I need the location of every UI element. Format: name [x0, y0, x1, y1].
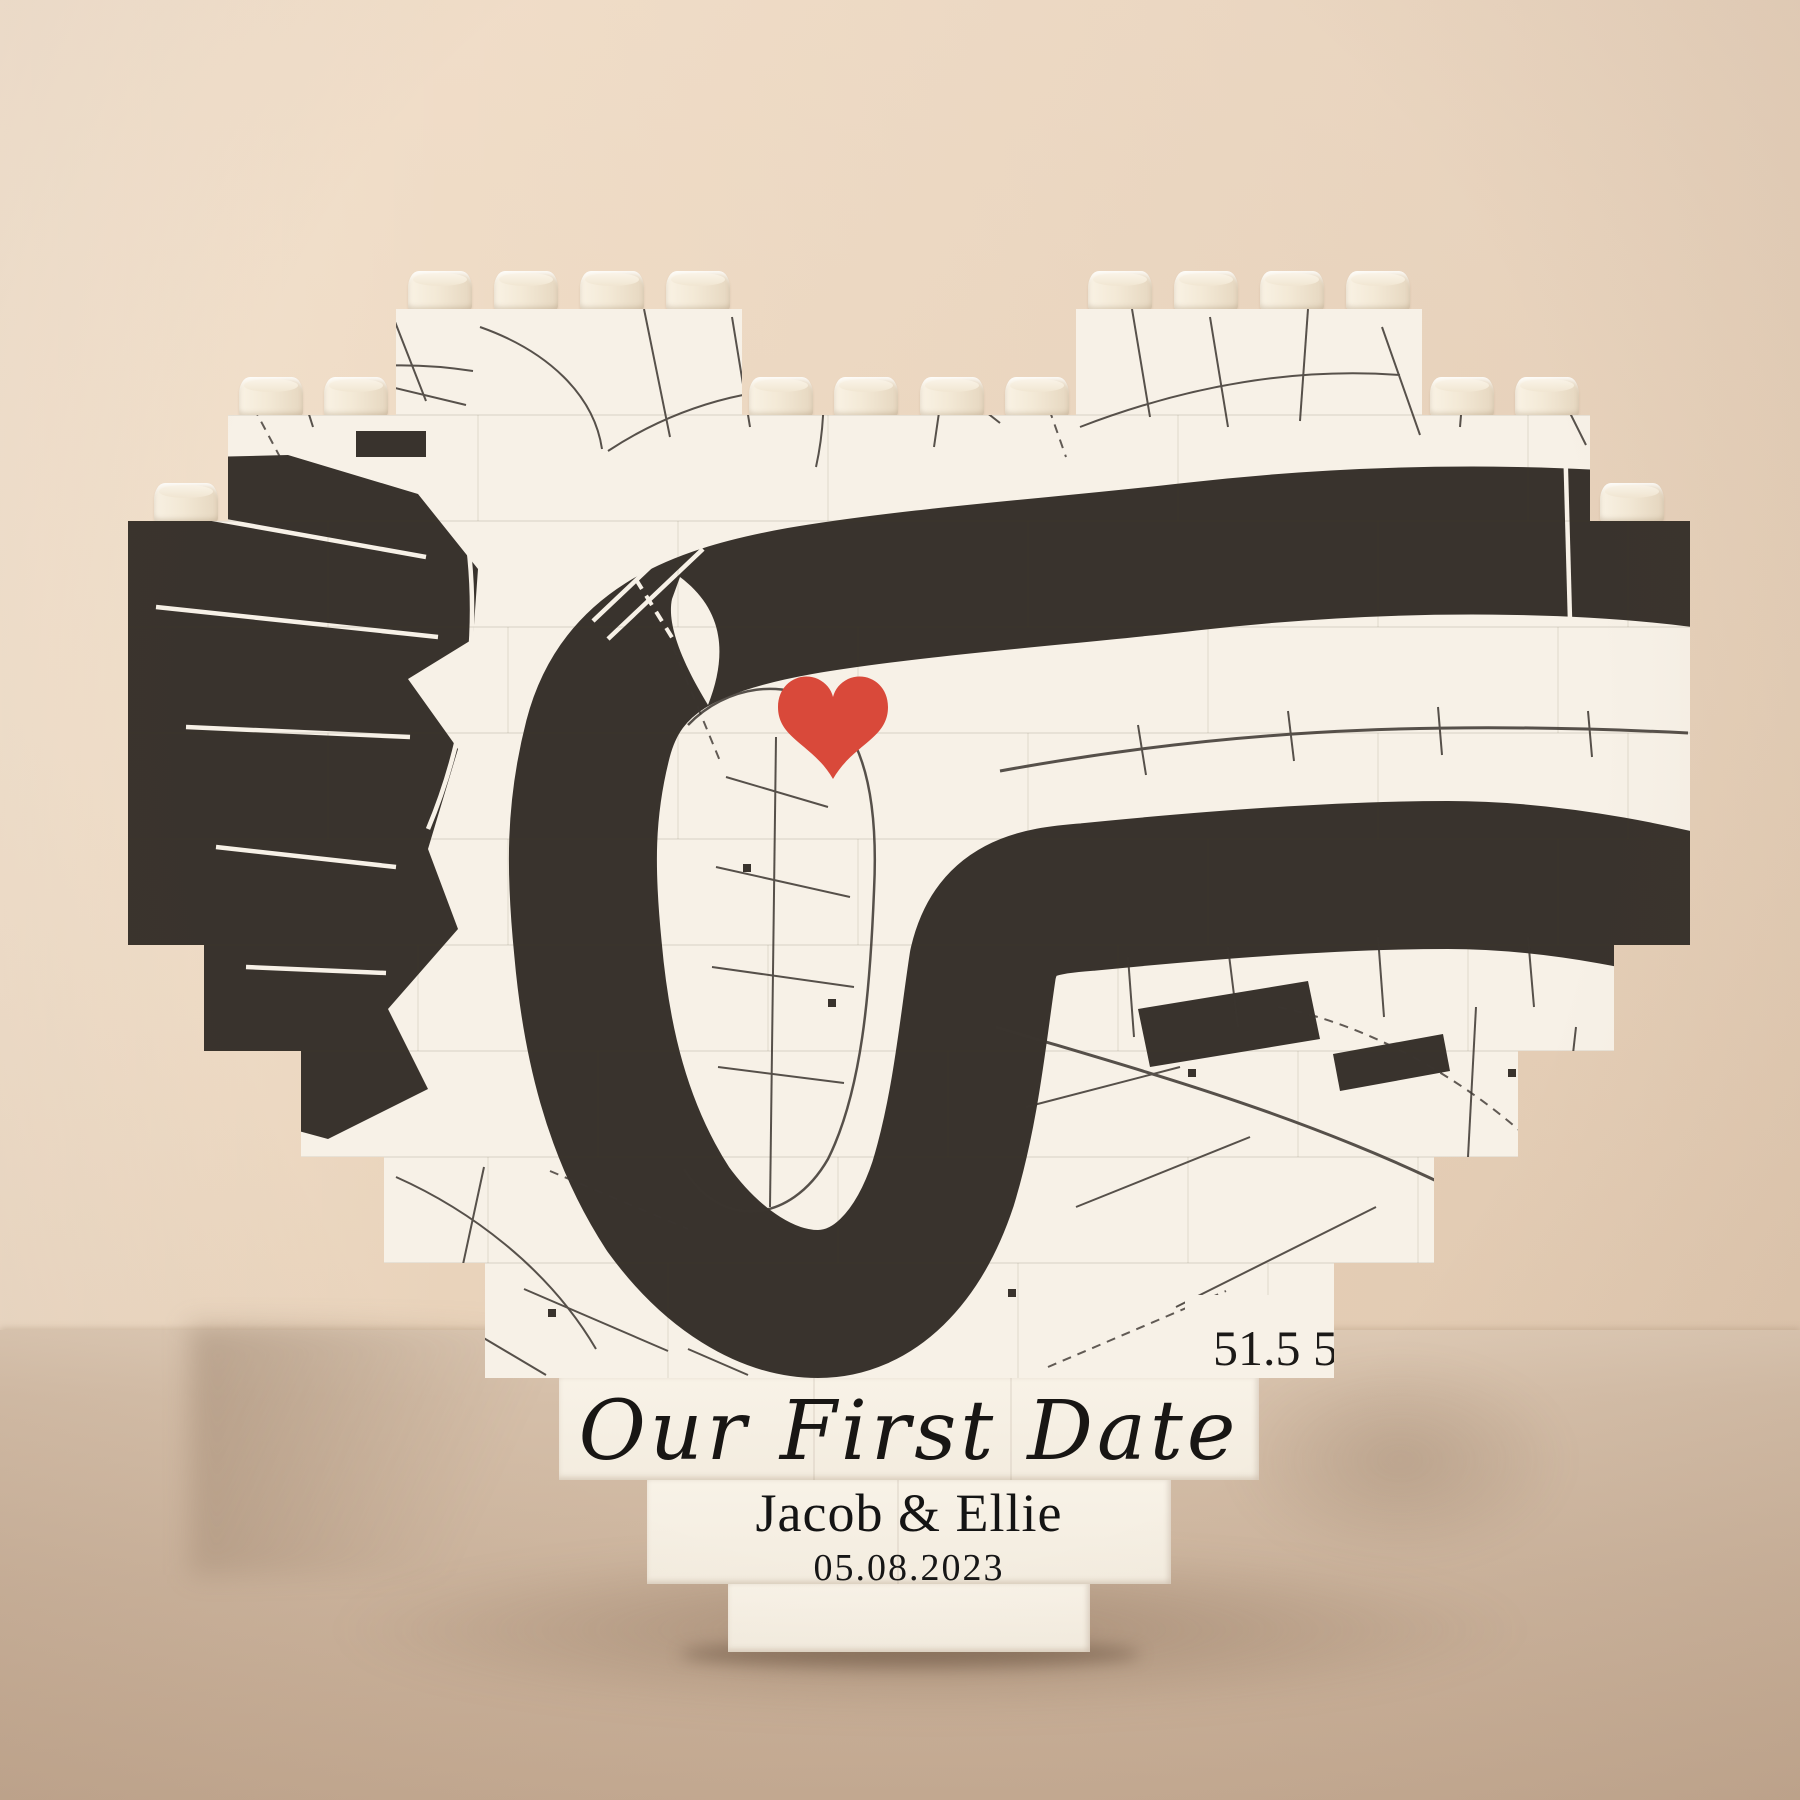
- brick-stud: [154, 483, 218, 523]
- brick-stud: [1088, 271, 1152, 311]
- product-photo: 51.5 5 Our First Date Jacob & Ellie 05.0…: [0, 0, 1800, 1800]
- brick-stud: [580, 271, 644, 311]
- dock-building: [356, 431, 426, 457]
- brick-stud: [1005, 377, 1069, 417]
- brick-stud: [1600, 483, 1664, 523]
- brick-stud: [1260, 271, 1324, 311]
- brick-stud: [324, 377, 388, 417]
- brick-stud: [494, 271, 558, 311]
- coordinate-label: 51.5 5: [1213, 1320, 1338, 1376]
- brick-stud: [1346, 271, 1410, 311]
- title-brick-row: Our First Date: [559, 1378, 1259, 1480]
- couple-names: Jacob & Ellie: [647, 1482, 1171, 1544]
- brick-stud: [1515, 377, 1579, 417]
- names-brick-row: Jacob & Ellie 05.08.2023: [647, 1480, 1171, 1584]
- brick-stud: [408, 271, 472, 311]
- brick-stud: [749, 377, 813, 417]
- brick-stud: [239, 377, 303, 417]
- foot-brick-row: [728, 1584, 1090, 1652]
- brick-stud: [1174, 271, 1238, 311]
- brick-stud: [1430, 377, 1494, 417]
- brick-stud: [834, 377, 898, 417]
- brick-stud: [920, 377, 984, 417]
- title-text: Our First Date: [559, 1384, 1259, 1479]
- brick-stud: [666, 271, 730, 311]
